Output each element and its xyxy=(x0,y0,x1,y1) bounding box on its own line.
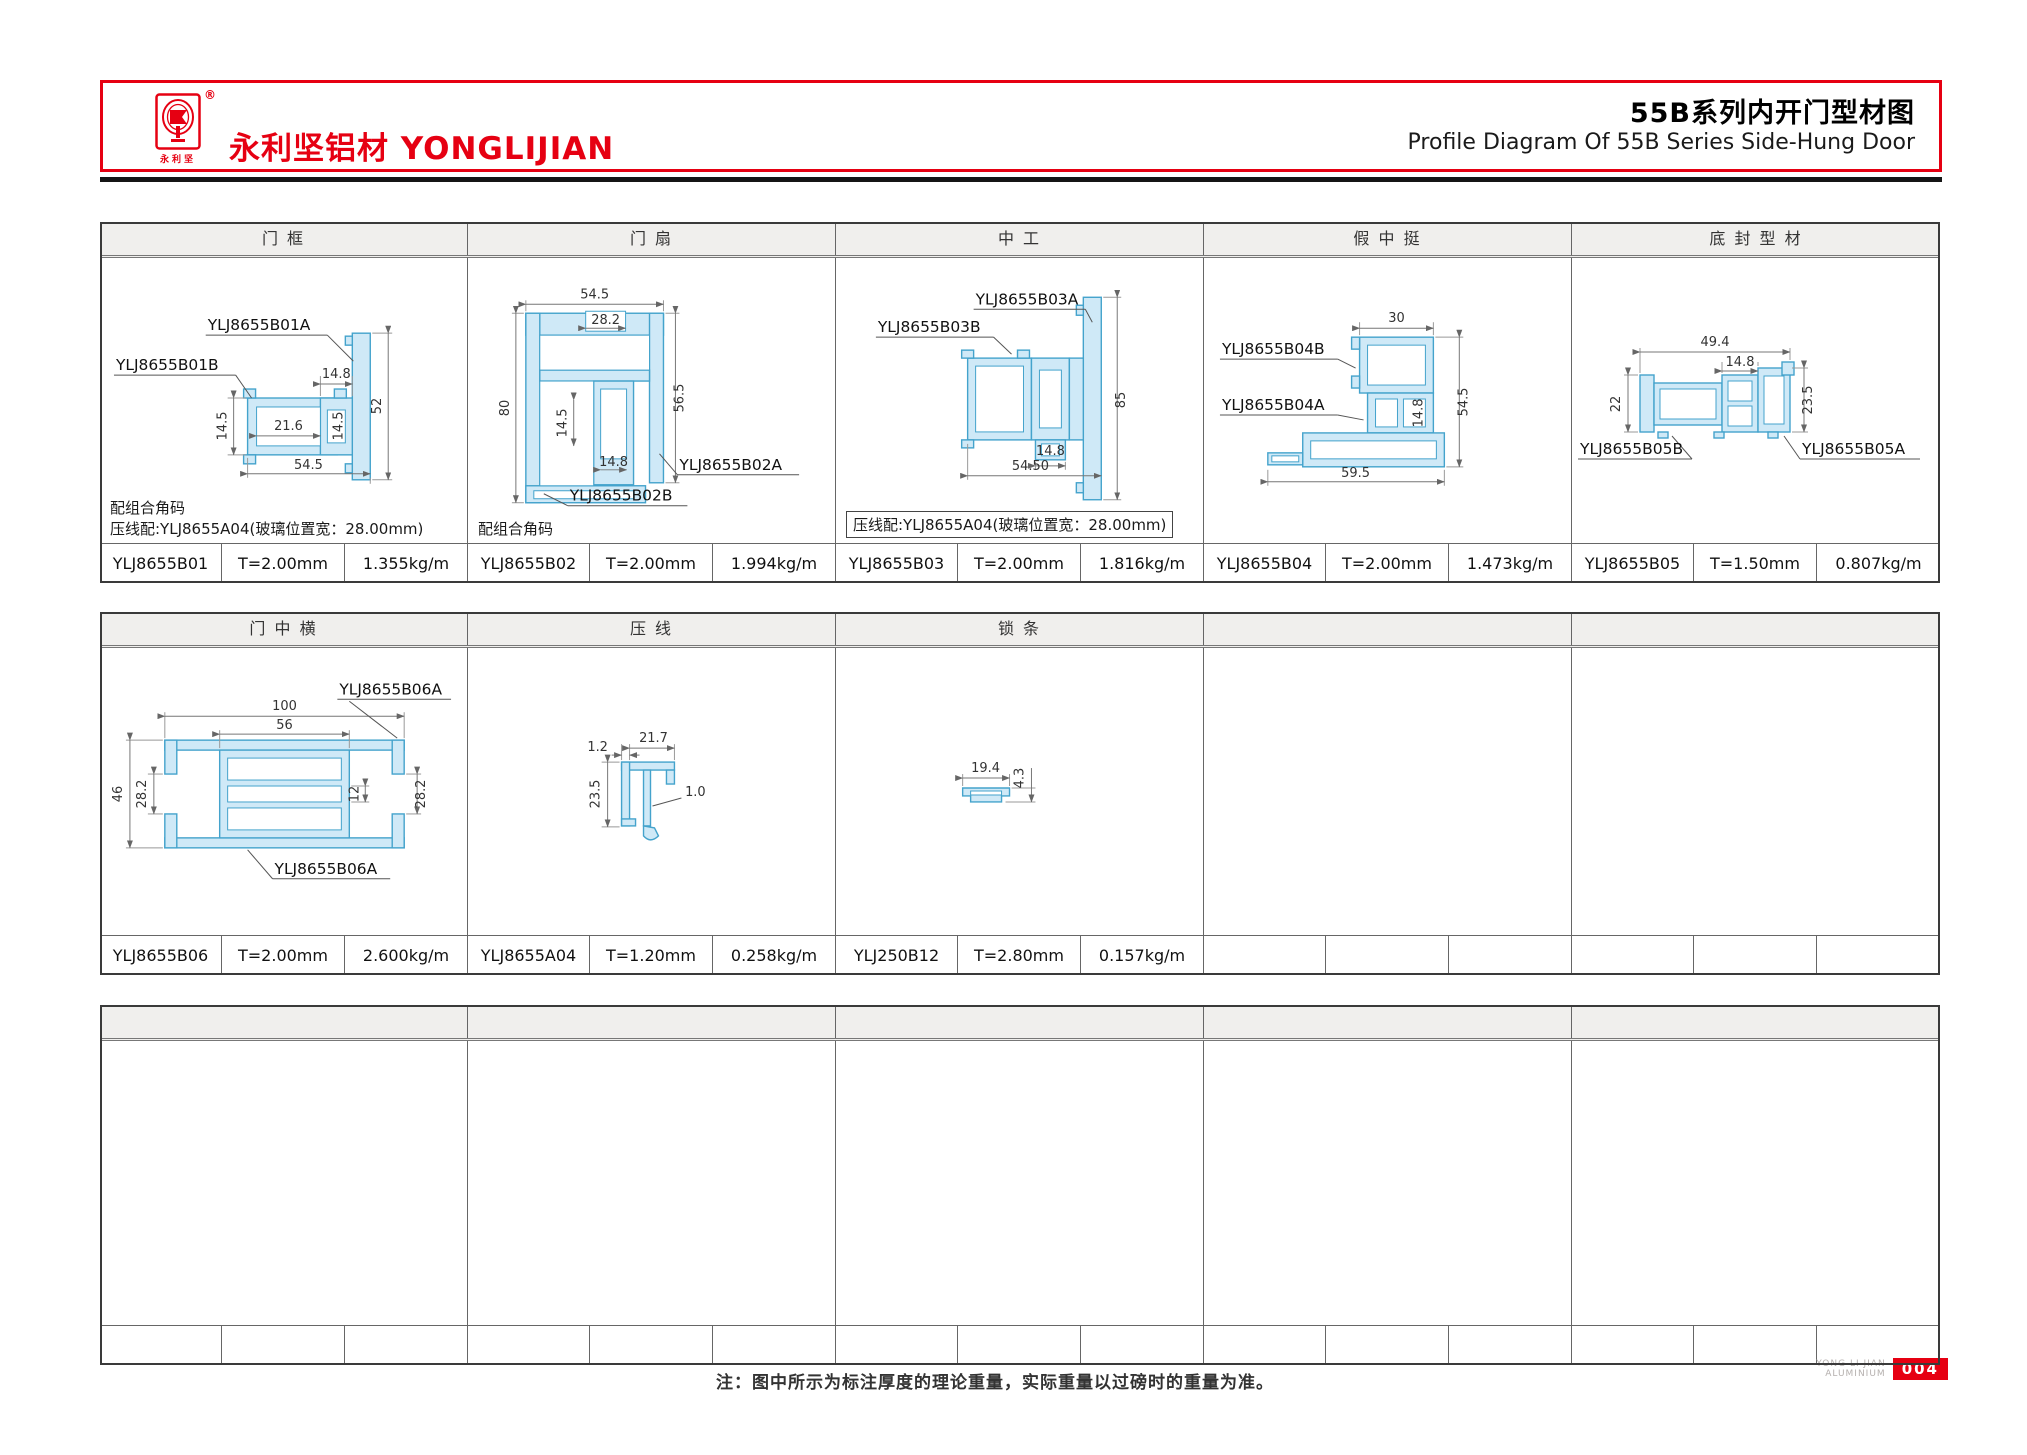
spec-empty-cell xyxy=(222,1326,345,1365)
diagram-cell-b03: 85 14.8 54.50 YLJ8655B03A YLJ8655B03B 压线… xyxy=(836,258,1204,543)
col-header-glazing-bead: 压 线 xyxy=(468,612,836,645)
diagram-cell-empty xyxy=(100,1041,468,1325)
spec-weight-cell: 1.355kg/m xyxy=(345,544,468,583)
dimension-lines xyxy=(602,744,682,827)
part-label: YLJ8655B06A xyxy=(274,860,378,878)
section1-spec-row: YLJ8655B01 T=2.00mm 1.355kg/m YLJ8655B02… xyxy=(100,543,1940,583)
dim-label: 23.5 xyxy=(589,780,604,809)
dim-label: 1.0 xyxy=(685,785,706,800)
part-label: YLJ8655B06A xyxy=(338,680,442,698)
dim-label: 14.8 xyxy=(1036,444,1065,459)
profile-diagram-b03: 85 14.8 54.50 YLJ8655B03A YLJ8655B03B xyxy=(836,258,1203,543)
section2-spec-row: YLJ8655B06 T=2.00mm 2.600kg/m YLJ8655A04… xyxy=(100,935,1940,975)
page-title-cn: 55B系列内开门型材图 xyxy=(1630,91,1915,130)
diagram-cell-empty xyxy=(468,1041,836,1325)
col-header-bottom-seal: 底 封 型 材 xyxy=(1572,222,1940,255)
brand-name-en: YONGLIJIAN xyxy=(401,131,614,167)
part-label: YLJ8655B04A xyxy=(1221,396,1325,414)
spec-code-cell: YLJ8655B06 xyxy=(100,936,222,975)
spec-weight-cell: 0.807kg/m xyxy=(1817,544,1940,583)
header-divider-rule xyxy=(100,177,1942,182)
diagram-cell-b01: 14.8 52 14.5 21.6 14.5 54.5 YLJ8655B01A … xyxy=(100,258,468,543)
cell-note-boxed: 压线配:YLJ8655A04(玻璃位置宽：28.00mm) xyxy=(846,511,1173,538)
dim-label: 22 xyxy=(1609,396,1624,413)
dim-label: 54.50 xyxy=(1012,459,1049,474)
diagram-cell-a04: 1.2 21.7 23.5 1.0 xyxy=(468,648,836,935)
page-number-badge: 004 xyxy=(1893,1358,1948,1380)
profile-shape xyxy=(1640,362,1794,438)
col-header-door-frame: 门 框 xyxy=(100,222,468,255)
spec-thickness-cell: T=1.20mm xyxy=(590,936,713,975)
part-label: YLJ8655B03B xyxy=(877,318,981,336)
spec-thickness-cell: T=2.00mm xyxy=(958,544,1081,583)
spec-weight-cell: 2.600kg/m xyxy=(345,936,468,975)
diagram-cell-empty xyxy=(1572,648,1940,935)
spec-empty-cell xyxy=(590,1326,713,1365)
section1-diagram-row: 14.8 52 14.5 21.6 14.5 54.5 YLJ8655B01A … xyxy=(100,258,1940,543)
col-header-lock-strip: 锁 条 xyxy=(836,612,1204,645)
dim-label: 14.8 xyxy=(599,455,628,470)
dim-label: 54.5 xyxy=(580,287,609,302)
spec-weight-cell: 1.994kg/m xyxy=(713,544,836,583)
col-header-empty xyxy=(1204,612,1572,645)
note-line: 压线配:YLJ8655A04(玻璃位置宽：28.00mm) xyxy=(110,519,423,540)
part-label: YLJ8655B02A xyxy=(678,456,782,474)
part-label: YLJ8655B02B xyxy=(569,487,673,505)
dim-label: 23.5 xyxy=(1801,386,1816,415)
dim-label: 54.5 xyxy=(1456,388,1471,417)
dim-label: 14.5 xyxy=(331,412,346,441)
spec-empty-cell xyxy=(1572,936,1694,975)
footer-note: 注：图中所示为标注厚度的理论重量，实际重量以过磅时的重量为准。 xyxy=(0,1368,1990,1393)
spec-thickness-cell: T=2.80mm xyxy=(958,936,1081,975)
spec-code-cell: YLJ250B12 xyxy=(836,936,958,975)
profile-shape xyxy=(963,788,1010,802)
part-label: YLJ8655B01B xyxy=(115,356,219,374)
dim-label: 28.2 xyxy=(135,780,150,809)
catalog-page: ® 永利坚 永利坚铝材 YONGLIJIAN 55B系列内开门型材图 Profi… xyxy=(0,0,2027,1455)
section3-spec-row xyxy=(100,1325,1940,1365)
spec-empty-cell xyxy=(100,1326,222,1365)
dim-label: 14.8 xyxy=(1726,355,1755,370)
diagram-cell-b04: 30 54.5 14.8 59.5 YLJ8655B04B YLJ8655B04… xyxy=(1204,258,1572,543)
dim-label: 1.2 xyxy=(587,740,608,755)
section2-diagram-row: 100 56 46 28.2 12 28.2 YLJ8655B06A YLJ86… xyxy=(100,648,1940,935)
spec-empty-cell xyxy=(1326,1326,1449,1365)
spec-thickness-cell: T=2.00mm xyxy=(590,544,713,583)
profile-diagram-a04: 1.2 21.7 23.5 1.0 xyxy=(468,648,835,935)
diagram-cell-empty xyxy=(1572,1041,1940,1325)
note-line: 配组合角码 xyxy=(110,498,423,519)
col-header-door-leaf: 门 扇 xyxy=(468,222,836,255)
spec-code-cell: YLJ8655B04 xyxy=(1204,544,1326,583)
spec-empty-cell xyxy=(836,1326,958,1365)
dim-label: 12 xyxy=(347,786,362,802)
page-header: ® 永利坚 永利坚铝材 YONGLIJIAN 55B系列内开门型材图 Profi… xyxy=(100,80,1942,172)
section3-header-row xyxy=(100,1005,1940,1041)
spec-empty-cell xyxy=(1449,936,1572,975)
spec-empty-cell xyxy=(1572,1326,1694,1365)
note-line: 配组合角码 xyxy=(478,519,553,540)
profile-diagram-b04: 30 54.5 14.8 59.5 YLJ8655B04B YLJ8655B04… xyxy=(1204,258,1571,543)
spec-thickness-cell: T=2.00mm xyxy=(222,544,345,583)
spec-empty-cell xyxy=(1694,1326,1817,1365)
brand-name-cn: 永利坚铝材 xyxy=(229,131,389,167)
dim-label: 80 xyxy=(498,400,513,416)
profile-diagram-b12: 19.4 4.3 xyxy=(836,648,1203,935)
spec-code-cell: YLJ8655B05 xyxy=(1572,544,1694,583)
spec-empty-cell xyxy=(1204,936,1326,975)
spec-weight-cell: 0.157kg/m xyxy=(1081,936,1204,975)
part-label: YLJ8655B05B xyxy=(1579,440,1683,458)
spec-empty-cell xyxy=(1694,936,1817,975)
dim-label: 52 xyxy=(370,398,385,414)
part-label: YLJ8655B01A xyxy=(207,316,311,334)
dim-label: 100 xyxy=(272,699,297,714)
spec-empty-cell xyxy=(1081,1326,1204,1365)
spec-code-cell: YLJ8655B01 xyxy=(100,544,222,583)
dim-label: 54.5 xyxy=(294,458,323,473)
dim-label: 19.4 xyxy=(971,761,1000,776)
logo-subtext: 永利坚 xyxy=(147,152,209,165)
dim-label: 46 xyxy=(111,786,126,802)
brand-name: 永利坚铝材 YONGLIJIAN xyxy=(229,123,614,168)
spec-code-cell: YLJ8655A04 xyxy=(468,936,590,975)
dim-label: 14.5 xyxy=(556,409,571,438)
dim-label: 21.7 xyxy=(639,731,668,746)
spec-code-cell: YLJ8655B02 xyxy=(468,544,590,583)
col-header-mullion: 中 工 xyxy=(836,222,1204,255)
spec-empty-cell xyxy=(1817,936,1940,975)
diagram-cell-empty xyxy=(1204,648,1572,935)
profile-diagram-b06: 100 56 46 28.2 12 28.2 YLJ8655B06A YLJ86… xyxy=(100,648,467,935)
spec-empty-cell xyxy=(713,1326,836,1365)
spec-weight-cell: 1.473kg/m xyxy=(1449,544,1572,583)
diagram-cell-b05: 49.4 14.8 22 23.5 YLJ8655B05B YLJ8655B05… xyxy=(1572,258,1940,543)
dim-label: 21.6 xyxy=(274,419,303,434)
diagram-cell-empty xyxy=(836,1041,1204,1325)
col-header-empty xyxy=(1204,1005,1572,1038)
dim-label: 14.5 xyxy=(216,412,231,441)
profile-section-2: 门 中 横 压 线 锁 条 xyxy=(100,612,1940,975)
dim-label: 28.2 xyxy=(414,780,429,809)
spec-code-cell: YLJ8655B03 xyxy=(836,544,958,583)
spec-empty-cell xyxy=(958,1326,1081,1365)
dim-label: 59.5 xyxy=(1341,466,1370,481)
col-header-door-mid-rail: 门 中 横 xyxy=(100,612,468,645)
dim-label: 30 xyxy=(1388,311,1404,326)
spec-empty-cell xyxy=(468,1326,590,1365)
footer-brand: YONG LI JIAN ALUMINIUM 004 xyxy=(1816,1358,1948,1380)
profile-shape xyxy=(622,762,675,840)
spec-empty-cell xyxy=(1204,1326,1326,1365)
profile-section-1: 门 框 门 扇 中 工 假 中 挺 底 封 型 材 xyxy=(100,222,1940,583)
dim-label: 85 xyxy=(1114,392,1129,408)
logo-swirl-icon xyxy=(155,93,201,150)
section1-header-row: 门 框 门 扇 中 工 假 中 挺 底 封 型 材 xyxy=(100,222,1940,258)
dim-label: 56 xyxy=(276,718,292,733)
profile-shape xyxy=(165,740,404,848)
spec-empty-cell xyxy=(1449,1326,1572,1365)
dim-label: 14.8 xyxy=(1411,399,1426,428)
diagram-cell-b02: 54.5 28.2 80 56.5 14.5 14.8 YLJ8655B02A … xyxy=(468,258,836,543)
page-title-en: Profile Diagram Of 55B Series Side-Hung … xyxy=(1408,130,1915,155)
col-header-empty xyxy=(1572,612,1940,645)
diagram-cell-b12: 19.4 4.3 xyxy=(836,648,1204,935)
section2-header-row: 门 中 横 压 线 锁 条 xyxy=(100,612,1940,648)
section3-diagram-row xyxy=(100,1041,1940,1325)
diagram-cell-empty xyxy=(1204,1041,1572,1325)
part-label: YLJ8655B05A xyxy=(1801,440,1905,458)
col-header-empty xyxy=(836,1005,1204,1038)
col-header-empty xyxy=(468,1005,836,1038)
dim-label: 4.3 xyxy=(1012,768,1027,789)
footer-brand-line1: YONG LI JIAN xyxy=(1816,1359,1885,1369)
dim-label: 49.4 xyxy=(1701,335,1730,350)
profile-diagram-b05: 49.4 14.8 22 23.5 YLJ8655B05B YLJ8655B05… xyxy=(1572,258,1940,543)
spec-weight-cell: 0.258kg/m xyxy=(713,936,836,975)
profile-shape xyxy=(526,311,664,502)
diagram-cell-b06: 100 56 46 28.2 12 28.2 YLJ8655B06A YLJ86… xyxy=(100,648,468,935)
spec-weight-cell: 1.816kg/m xyxy=(1081,544,1204,583)
col-header-empty xyxy=(1572,1005,1940,1038)
part-label: YLJ8655B04B xyxy=(1221,340,1325,358)
col-header-false-mullion: 假 中 挺 xyxy=(1204,222,1572,255)
dim-label: 28.2 xyxy=(591,313,620,328)
profile-section-3 xyxy=(100,1005,1940,1365)
dim-label: 56.5 xyxy=(672,384,687,413)
cell-notes: 配组合角码 xyxy=(478,519,553,540)
spec-empty-cell xyxy=(345,1326,468,1365)
spec-empty-cell xyxy=(1326,936,1449,975)
dim-label: 14.8 xyxy=(322,367,351,382)
spec-thickness-cell: T=1.50mm xyxy=(1694,544,1817,583)
spec-thickness-cell: T=2.00mm xyxy=(222,936,345,975)
brand-logo xyxy=(155,93,201,150)
part-label: YLJ8655B03A xyxy=(975,290,1079,308)
footer-brand-text: YONG LI JIAN ALUMINIUM xyxy=(1816,1359,1885,1379)
footer-brand-line2: ALUMINIUM xyxy=(1816,1369,1885,1379)
profile-diagram-b02: 54.5 28.2 80 56.5 14.5 14.8 YLJ8655B02A … xyxy=(468,258,835,543)
cell-notes: 配组合角码 压线配:YLJ8655A04(玻璃位置宽：28.00mm) xyxy=(110,498,423,540)
spec-thickness-cell: T=2.00mm xyxy=(1326,544,1449,583)
registered-mark: ® xyxy=(204,88,216,102)
col-header-empty xyxy=(100,1005,468,1038)
